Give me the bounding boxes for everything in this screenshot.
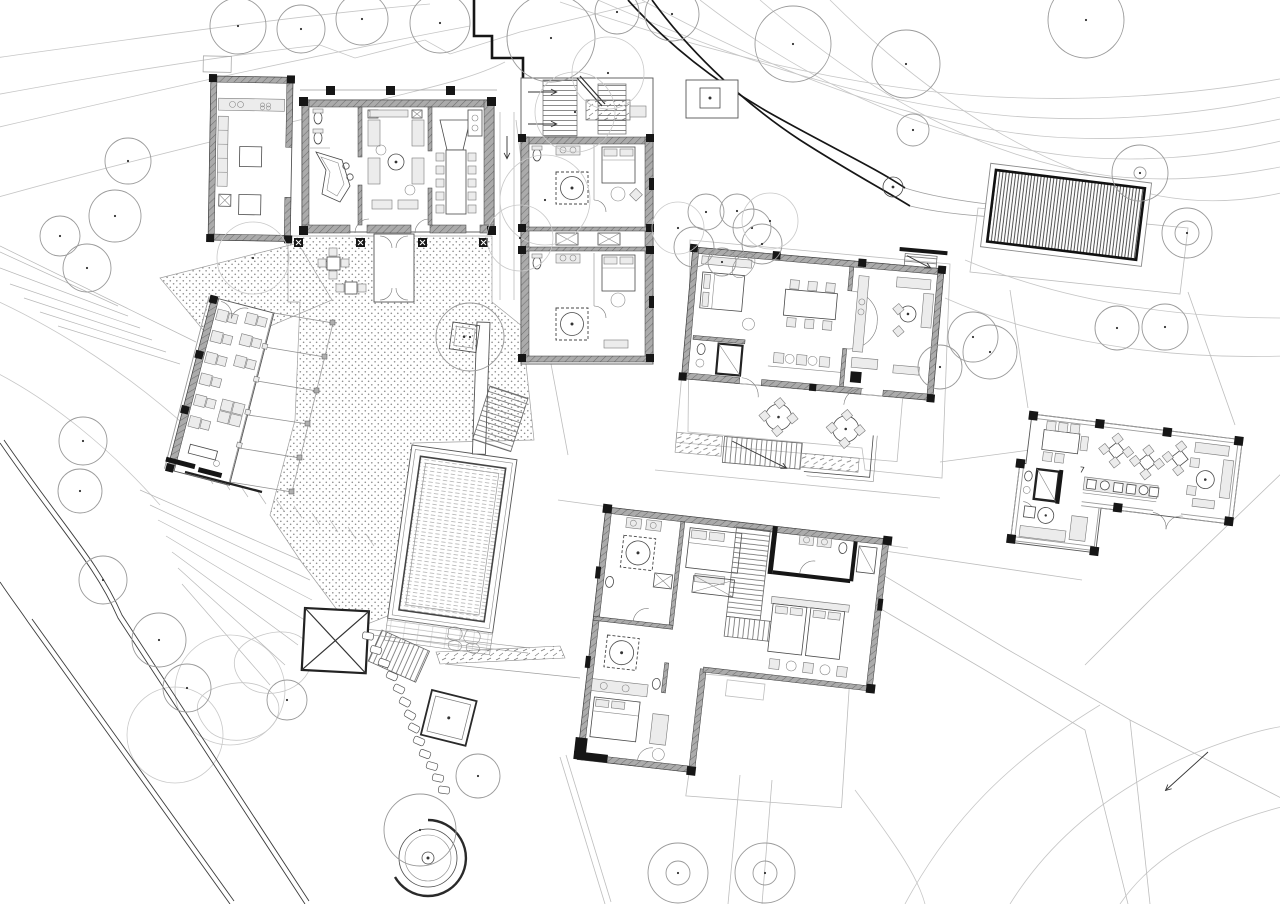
tree — [507, 0, 595, 82]
stepping-stone — [426, 761, 439, 771]
entry-vestibule — [374, 234, 414, 302]
building-pavilion: 7 — [1006, 410, 1244, 572]
stepping-stone — [393, 683, 406, 694]
stepping-stone — [408, 722, 421, 733]
x-braced-deck — [302, 608, 369, 673]
stepping-stone — [399, 696, 412, 707]
tree — [410, 0, 470, 53]
stepping-stone — [419, 749, 432, 759]
stepping-stone — [362, 632, 374, 641]
stepping-stone — [403, 709, 416, 721]
stepping-stone — [413, 736, 426, 747]
spa-circle — [395, 820, 466, 896]
terrace-table — [336, 282, 366, 294]
site-plan-drawing: 7 — [0, 0, 1280, 904]
stepping-stone — [432, 773, 444, 782]
door-number-label: 7 — [1079, 465, 1085, 475]
site-plan-sheet: 7 — [0, 0, 1280, 904]
building-restaurant — [163, 294, 276, 488]
tree — [1048, 0, 1124, 58]
curved-driveway — [628, 0, 996, 217]
square-pad — [421, 690, 477, 746]
access-road — [0, 440, 309, 904]
upper-annex — [686, 80, 738, 118]
building-garden-villa — [671, 229, 948, 487]
tree — [336, 0, 388, 45]
building-bedroom-wing — [571, 504, 893, 816]
stepping-stone — [438, 786, 450, 794]
kitchen-wing — [200, 56, 295, 244]
